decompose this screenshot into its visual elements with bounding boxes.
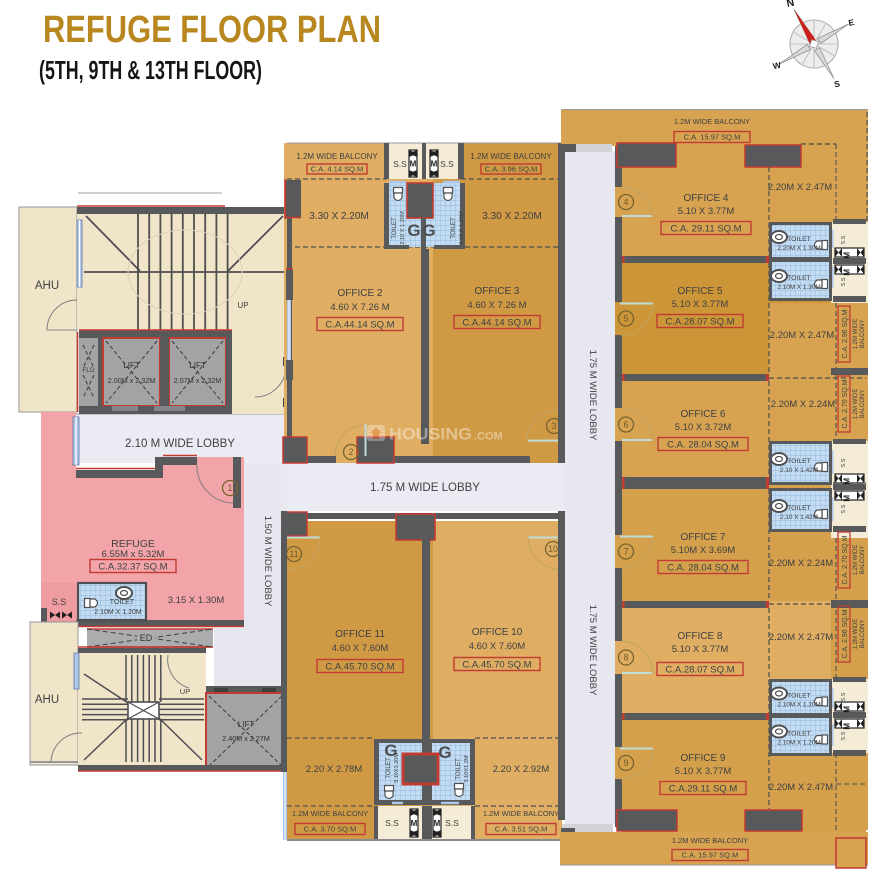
svg-text:LIFT: LIFT: [189, 361, 206, 370]
svg-text:5.10 X 3.77M: 5.10 X 3.77M: [675, 766, 732, 777]
svg-text:UP: UP: [237, 301, 248, 310]
svg-text:1.2M WIDE BALCONY: 1.2M WIDE BALCONY: [483, 809, 559, 818]
svg-text:(5TH, 9TH & 13TH FLOOR): (5TH, 9TH & 13TH FLOOR): [39, 55, 262, 85]
svg-text:C.A. 2.96 SQ.M: C.A. 2.96 SQ.M: [842, 309, 849, 358]
svg-text:REFUGE FLOOR PLAN: REFUGE FLOOR PLAN: [43, 9, 381, 51]
svg-text:OFFICE 10: OFFICE 10: [472, 627, 523, 638]
svg-text:M: M: [434, 819, 441, 828]
svg-text:TOILET: TOILET: [787, 693, 811, 700]
svg-text:C.A. 2.70 SQ.M: C.A. 2.70 SQ.M: [842, 379, 849, 428]
svg-text:C.A. 3.96 SQ.M: C.A. 3.96 SQ.M: [485, 165, 538, 174]
svg-text:AHU: AHU: [35, 694, 59, 706]
svg-text:2.40M x 2.27M: 2.40M x 2.27M: [222, 734, 270, 743]
svg-text:1.2M WIDE BALCONY: 1.2M WIDE BALCONY: [674, 117, 750, 126]
svg-text:C.A. 2.70 SQ.M: C.A. 2.70 SQ.M: [842, 535, 849, 584]
svg-text:TOILET: TOILET: [391, 217, 398, 239]
svg-text:N: N: [786, 0, 796, 10]
svg-text:BALCONY: BALCONY: [860, 320, 866, 349]
svg-text:1.75 M WIDE LOBBY: 1.75 M WIDE LOBBY: [370, 482, 480, 494]
svg-text:5.10 X 3.77M: 5.10 X 3.77M: [672, 644, 729, 655]
svg-text:OFFICE 9: OFFICE 9: [680, 753, 725, 764]
svg-text:OFFICE 7: OFFICE 7: [680, 532, 725, 543]
svg-text:1.75 M WIDE LOBBY: 1.75 M WIDE LOBBY: [587, 350, 598, 441]
svg-text:1: 1: [227, 483, 232, 493]
svg-text:BALCONY: BALCONY: [860, 390, 866, 419]
svg-text:1.2M WIDE BALCONY: 1.2M WIDE BALCONY: [292, 809, 368, 818]
svg-text:M: M: [431, 159, 438, 168]
svg-text:G: G: [422, 221, 435, 240]
svg-text:OFFICE 5: OFFICE 5: [677, 286, 722, 297]
svg-text:2.20M X 2.47M: 2.20M X 2.47M: [770, 330, 835, 341]
svg-text:S.S: S.S: [52, 597, 67, 607]
svg-text:M: M: [410, 159, 417, 168]
svg-text:AHU: AHU: [35, 280, 59, 292]
svg-text:1.2M WIDE: 1.2M WIDE: [853, 619, 859, 650]
svg-text:S.S: S.S: [841, 458, 847, 467]
svg-text:C.A.28.07 SQ.M: C.A.28.07 SQ.M: [665, 664, 734, 675]
svg-text:S.S: S.S: [841, 692, 847, 701]
svg-text:3.15 X 1.30M: 3.15 X 1.30M: [168, 595, 225, 606]
svg-text:M: M: [411, 819, 418, 828]
svg-text:11: 11: [289, 549, 298, 559]
svg-text:5: 5: [623, 314, 628, 324]
svg-text:2.00M x 2.32M: 2.00M x 2.32M: [108, 376, 156, 385]
svg-text:C.A.29.11 SQ.M: C.A.29.11 SQ.M: [669, 783, 738, 794]
svg-text:C.A. 15.97 SQ.M: C.A. 15.97 SQ.M: [682, 851, 739, 860]
svg-text:4.60 X 7.26 M: 4.60 X 7.26 M: [467, 300, 526, 311]
svg-text:TOILET: TOILET: [385, 757, 392, 779]
svg-text:TOILET: TOILET: [787, 731, 811, 738]
svg-text:2.10M X 1.30M: 2.10M X 1.30M: [777, 284, 820, 291]
svg-text:TOILET: TOILET: [110, 599, 135, 606]
svg-text:C.A. 2.96 SQ.M: C.A. 2.96 SQ.M: [842, 609, 849, 658]
svg-text:2.20M X 2.24M: 2.20M X 2.24M: [769, 558, 834, 569]
svg-text:C.A.45.70 SQ.M: C.A.45.70 SQ.M: [462, 659, 531, 670]
svg-text:2.10 X 1.42M: 2.10 X 1.42M: [780, 467, 818, 474]
svg-text:C.A.28.07 SQ.M: C.A.28.07 SQ.M: [665, 316, 734, 327]
svg-text:OFFICE 3: OFFICE 3: [474, 286, 519, 297]
svg-text:1.50 M WIDE LOBBY: 1.50 M WIDE LOBBY: [262, 516, 273, 607]
svg-text:2.10 X 1.20M: 2.10 X 1.20M: [459, 211, 465, 245]
svg-text:M: M: [843, 269, 852, 276]
svg-text:C.A. 15.97 SQ.M: C.A. 15.97 SQ.M: [684, 133, 741, 142]
svg-text:3.10X1.2M: 3.10X1.2M: [464, 755, 470, 782]
svg-text:TOILET: TOILET: [455, 758, 462, 780]
svg-text:4.60 X 7.26 M: 4.60 X 7.26 M: [330, 302, 389, 313]
svg-text:S.S: S.S: [841, 277, 847, 286]
svg-text:1.75 M WIDE LOBBY: 1.75 M WIDE LOBBY: [587, 605, 598, 696]
svg-text:TOILET: TOILET: [450, 217, 457, 239]
svg-text:C.A.32.37 SQ.M: C.A.32.37 SQ.M: [98, 561, 167, 572]
svg-text:G: G: [438, 743, 451, 762]
svg-text:LIFT: LIFT: [238, 720, 255, 729]
svg-text:3.10X1.20M: 3.10X1.20M: [394, 753, 400, 784]
svg-text:4.60 X 7.60M: 4.60 X 7.60M: [469, 641, 526, 652]
svg-text:8: 8: [623, 653, 628, 663]
svg-text:S.S: S.S: [393, 159, 407, 169]
svg-text:2.20M X 2.47M: 2.20M X 2.47M: [769, 782, 834, 793]
svg-text:LIFT: LIFT: [123, 361, 140, 370]
svg-text:2.10 X 1.20M: 2.10 X 1.20M: [400, 211, 406, 245]
svg-text:7: 7: [623, 547, 628, 557]
svg-text:OFFICE 11: OFFICE 11: [335, 629, 385, 640]
svg-text:OFFICE 6: OFFICE 6: [680, 409, 725, 420]
svg-text:C.A.45.70 SQ.M: C.A.45.70 SQ.M: [325, 661, 394, 672]
svg-text:3.30 X 2.20M: 3.30 X 2.20M: [482, 211, 541, 222]
svg-text:2.10 X 1.42M: 2.10 X 1.42M: [780, 514, 818, 521]
svg-text:9: 9: [623, 758, 628, 768]
svg-text:2.20M X 2.47M: 2.20M X 2.47M: [768, 182, 833, 193]
svg-text:2: 2: [348, 447, 353, 457]
svg-text:S.S: S.S: [841, 504, 847, 513]
svg-text:C.A.44.14 SQ.M: C.A.44.14 SQ.M: [325, 319, 394, 330]
svg-text:M: M: [843, 706, 852, 713]
svg-text:6: 6: [623, 420, 628, 430]
svg-text:1.2M WIDE BALCONY: 1.2M WIDE BALCONY: [672, 836, 748, 845]
svg-text:1.2M WIDE BALCONY: 1.2M WIDE BALCONY: [296, 152, 378, 161]
svg-text:S.S: S.S: [841, 731, 847, 740]
svg-text:BALCONY: BALCONY: [860, 546, 866, 575]
svg-text:FLD: FLD: [82, 367, 95, 374]
svg-text:C.A. 3.70 SQ.M: C.A. 3.70 SQ.M: [304, 825, 357, 834]
svg-text:4: 4: [623, 197, 628, 207]
svg-text:C.A. 28.04 SQ.M: C.A. 28.04 SQ.M: [667, 439, 739, 450]
svg-text:2.07M x 2.32M: 2.07M x 2.32M: [174, 376, 222, 385]
svg-text:OFFICE 4: OFFICE 4: [683, 193, 728, 204]
svg-text:2.20 X 2.78M: 2.20 X 2.78M: [306, 764, 363, 775]
svg-text:3: 3: [551, 421, 556, 431]
svg-text:M: M: [843, 478, 852, 485]
svg-text:S.S: S.S: [440, 159, 454, 169]
svg-text:4.60 X 7.60M: 4.60 X 7.60M: [332, 643, 389, 654]
svg-text:S.S: S.S: [445, 818, 459, 828]
svg-text:BALCONY: BALCONY: [860, 620, 866, 649]
svg-text:1.2M WIDE: 1.2M WIDE: [853, 319, 859, 350]
svg-text:S.S: S.S: [385, 818, 399, 828]
svg-text:C.A. 3.51 SQ.M: C.A. 3.51 SQ.M: [495, 825, 548, 834]
svg-text:1.2M WIDE BALCONY: 1.2M WIDE BALCONY: [470, 152, 552, 161]
svg-text:2.10M X 1.20M: 2.10M X 1.20M: [94, 609, 142, 616]
svg-text:C.A. 29.11 SQ.M: C.A. 29.11 SQ.M: [670, 223, 741, 234]
svg-text:HOUSING: HOUSING: [389, 426, 472, 444]
svg-text:C.A. 4.14 SQ.M: C.A. 4.14 SQ.M: [311, 165, 364, 174]
svg-text:TOILET: TOILET: [787, 505, 811, 512]
svg-text:C.A. 28.04 SQ.M: C.A. 28.04 SQ.M: [667, 562, 739, 573]
svg-text:M: M: [843, 723, 852, 730]
svg-text:2.20M X 2.47M: 2.20M X 2.47M: [769, 632, 834, 643]
svg-text:2.10 M WIDE LOBBY: 2.10 M WIDE LOBBY: [125, 438, 235, 450]
svg-text:2.20M X 2.24M: 2.20M X 2.24M: [771, 399, 836, 410]
svg-text:2.10M X 1.20M: 2.10M X 1.20M: [777, 702, 820, 709]
svg-text:OFFICE 8: OFFICE 8: [677, 631, 722, 642]
svg-text:M: M: [843, 252, 852, 259]
svg-text:10: 10: [548, 544, 558, 554]
svg-text:TOILET: TOILET: [787, 458, 811, 465]
svg-text:5.10 X 3.77M: 5.10 X 3.77M: [678, 206, 735, 217]
svg-text:2.20M X 1.30M: 2.20M X 1.30M: [777, 245, 820, 252]
svg-text:S.S: S.S: [841, 235, 847, 244]
svg-text:5.10 X 3.72M: 5.10 X 3.72M: [675, 422, 732, 433]
svg-text:5.10 X 3.77M: 5.10 X 3.77M: [672, 299, 729, 310]
svg-text:.COM: .COM: [474, 431, 503, 443]
svg-text:1.2M WIDE: 1.2M WIDE: [853, 389, 859, 420]
svg-text:ED: ED: [140, 633, 153, 643]
svg-text:G: G: [407, 221, 420, 240]
svg-text:1.2M WIDE: 1.2M WIDE: [853, 545, 859, 576]
svg-text:3.30 X 2.20M: 3.30 X 2.20M: [309, 211, 368, 222]
svg-text:OFFICE 2: OFFICE 2: [337, 288, 382, 299]
svg-text:M: M: [843, 495, 852, 502]
svg-text:C.A.44.14 SQ.M: C.A.44.14 SQ.M: [462, 317, 531, 328]
svg-text:TOILET: TOILET: [787, 275, 811, 282]
svg-text:TOILET: TOILET: [787, 236, 811, 243]
svg-text:5.10M X 3.69M: 5.10M X 3.69M: [671, 545, 736, 556]
svg-text:6.55M x 5.32M: 6.55M x 5.32M: [102, 549, 165, 560]
svg-text:2.10M X 1.20M: 2.10M X 1.20M: [777, 740, 820, 747]
svg-text:2.20 X 2.92M: 2.20 X 2.92M: [493, 764, 550, 775]
